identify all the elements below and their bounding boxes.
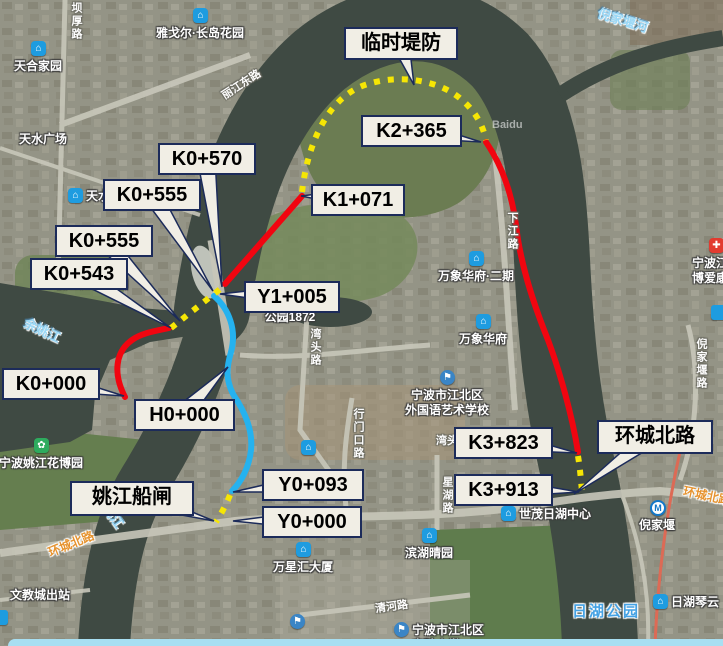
annotation-layer: 临时堤防K2+365K1+071K0+570K0+555K0+555K0+543… [0, 0, 723, 646]
callout-k0-555-a: K0+555 [103, 179, 201, 211]
callout-k0-000: K0+000 [2, 368, 100, 400]
callout-y0-093: Y0+093 [262, 469, 364, 501]
satellite-map-canvas[interactable]: ⌂雅戈尔·长岛花园⌂天合家园⌂天水家园⌂公园1872⌂万象华府·二期⌂万象华府⌂… [0, 0, 723, 646]
callout-k3-913: K3+913 [454, 474, 553, 506]
callout-k0-570: K0+570 [158, 143, 256, 175]
callout-linshi-difang: 临时堤防 [344, 27, 458, 60]
callout-k1-071: K1+071 [311, 184, 405, 216]
callout-k3-823: K3+823 [454, 427, 553, 459]
callout-huancheng-beilu: 环城北路 [597, 420, 713, 454]
callout-yaojiang-chuanzha: 姚江船闸 [70, 481, 194, 516]
callout-k0-555-b: K0+555 [55, 225, 153, 257]
callout-k0-543: K0+543 [30, 258, 128, 290]
bottom-overlay-bar [8, 639, 723, 646]
callout-y1-005: Y1+005 [244, 281, 340, 313]
callout-h0-000: H0+000 [134, 399, 235, 431]
callout-y0-000: Y0+000 [262, 506, 362, 538]
callout-k2-365: K2+365 [361, 115, 462, 147]
